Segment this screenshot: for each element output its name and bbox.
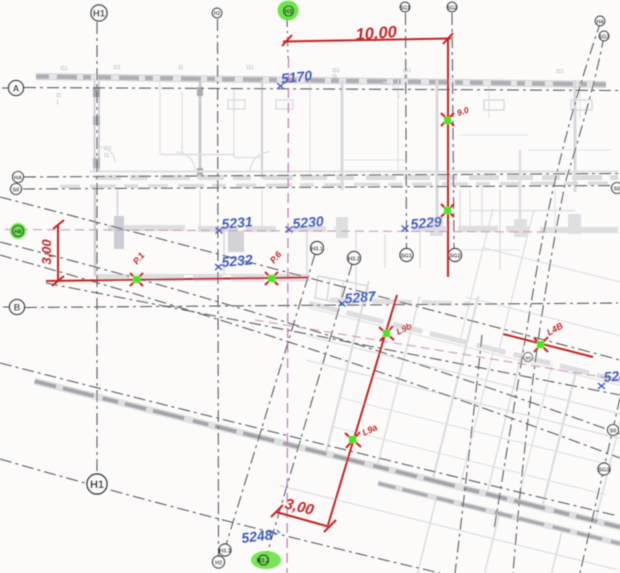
svg-text:111: 111 — [104, 146, 112, 152]
svg-text:5287: 5287 — [344, 288, 378, 307]
svg-text:5229: 5229 — [410, 213, 443, 232]
svg-text:H2: H2 — [214, 11, 221, 17]
svg-text:SG3: SG3 — [598, 468, 609, 474]
svg-text:H3: H3 — [285, 10, 293, 16]
svg-text:5170: 5170 — [280, 67, 313, 86]
svg-text:S0: S0 — [13, 188, 20, 194]
svg-text:H3.1: H3.1 — [311, 247, 323, 253]
svg-text:111: 111 — [113, 65, 121, 71]
svg-text:5230: 5230 — [292, 213, 325, 232]
svg-text:1: 1 — [56, 100, 59, 106]
svg-text:111: 111 — [246, 65, 254, 71]
svg-text:111: 111 — [556, 69, 564, 75]
svg-text:SG2: SG2 — [447, 6, 457, 12]
svg-text:H4: H4 — [596, 20, 604, 26]
svg-text:SG2: SG2 — [449, 254, 460, 260]
svg-text:3,00: 3,00 — [39, 239, 54, 265]
svg-text:B: B — [14, 303, 21, 313]
svg-text:S0: S0 — [525, 356, 531, 361]
svg-text:H8: H8 — [14, 230, 21, 236]
svg-text:SG1: SG1 — [401, 254, 412, 260]
svg-text:HA: HA — [14, 176, 22, 182]
svg-text:H3.2: H3.2 — [257, 559, 270, 565]
svg-text:H1: H1 — [90, 479, 104, 491]
svg-text:524: 524 — [603, 367, 620, 385]
svg-text:5231: 5231 — [221, 213, 254, 232]
svg-text:5232: 5232 — [221, 251, 254, 270]
svg-text:H3.2: H3.2 — [348, 257, 360, 263]
svg-text:11: 11 — [178, 65, 183, 71]
svg-text:A: A — [13, 84, 20, 94]
svg-text:111: 111 — [60, 66, 68, 72]
svg-text:S0: S0 — [610, 429, 617, 435]
svg-text:H3.1: H3.1 — [219, 549, 231, 555]
svg-text:10,00: 10,00 — [355, 23, 398, 44]
svg-text:11: 11 — [104, 153, 109, 159]
svg-text:H2: H2 — [215, 561, 222, 567]
svg-text:SG1: SG1 — [400, 6, 410, 12]
svg-text:SG3: SG3 — [598, 35, 609, 41]
svg-text:H1: H1 — [93, 9, 106, 20]
svg-text:11: 11 — [332, 74, 337, 80]
svg-text:S0: S0 — [614, 187, 620, 193]
svg-text:11: 11 — [56, 93, 61, 99]
